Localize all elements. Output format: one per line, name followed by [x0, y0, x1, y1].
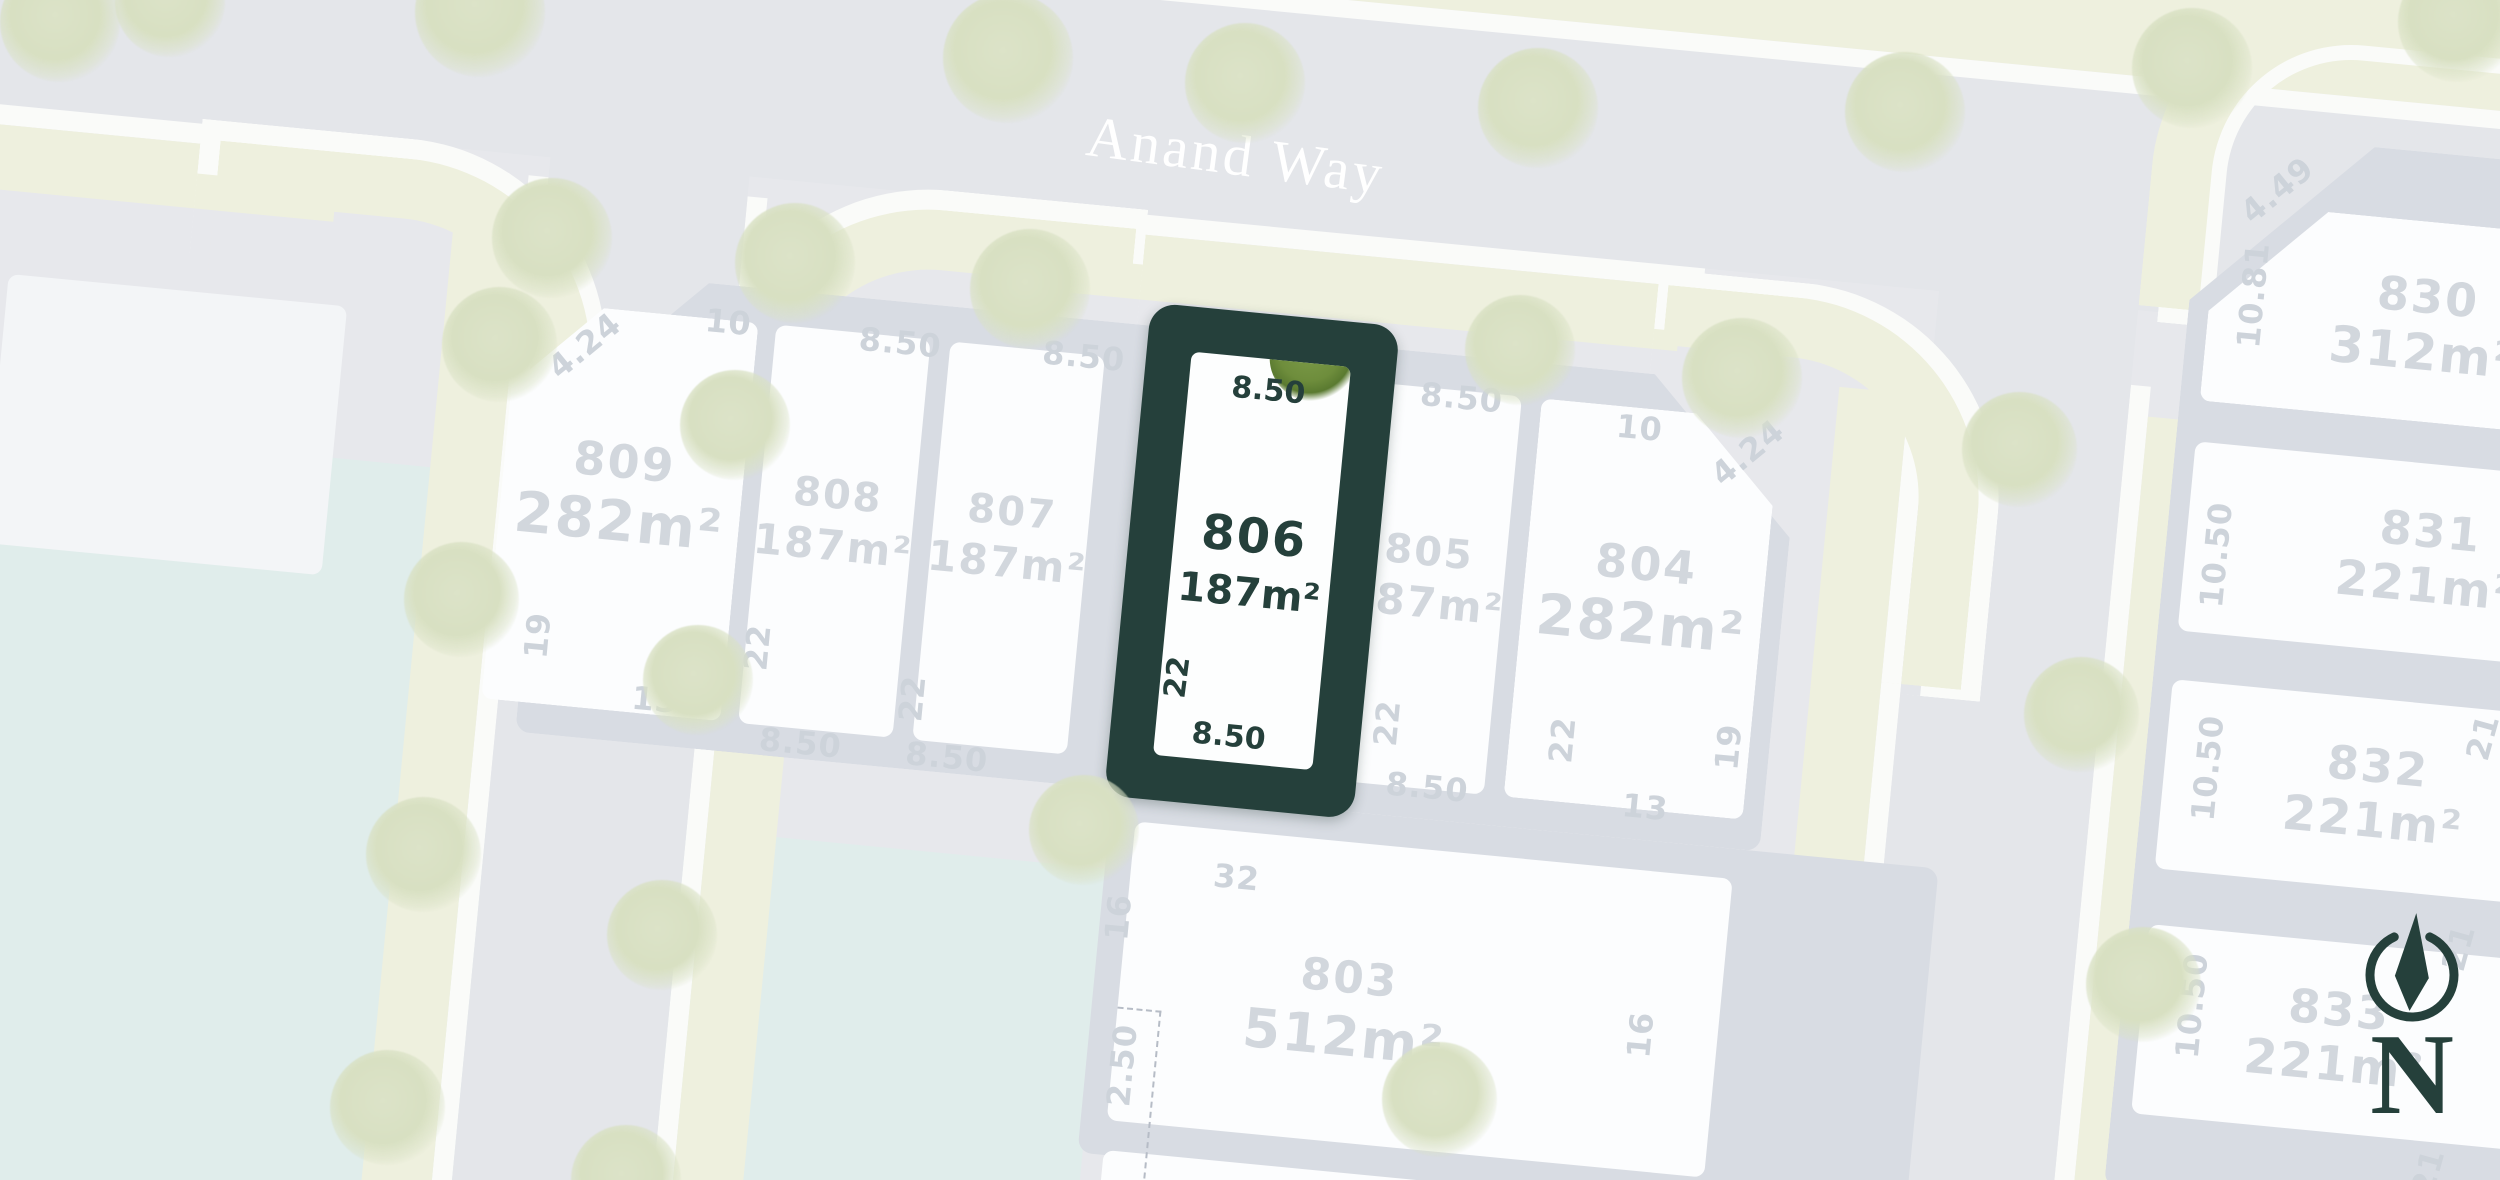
dimension-label: 8.50	[1190, 715, 1267, 757]
dimension-label: 22	[1157, 654, 1197, 700]
lot-number: 806	[1199, 504, 1310, 570]
dimension-label: 10	[703, 301, 753, 343]
compass-needle-icon	[2393, 912, 2434, 1012]
tree-icon	[1962, 392, 2077, 507]
dimension-label: 19	[516, 610, 558, 660]
tree-icon	[2132, 8, 2252, 128]
dimension-label: 8.50	[1230, 370, 1307, 412]
dimension-label: 22	[891, 673, 933, 723]
lot-area: 187m²	[751, 518, 914, 575]
tree-icon	[330, 1050, 445, 1165]
dimension-label: 8.50	[1384, 764, 1470, 810]
lot-number: 807	[966, 488, 1059, 536]
lot-number: 830	[2375, 269, 2481, 325]
north-label: N	[2370, 1011, 2454, 1115]
lot-area: 312m²	[2327, 319, 2500, 387]
lot-number: 808	[791, 471, 884, 519]
lot-806-parcel: 8.50 806 187m² 22 8.50	[1153, 352, 1351, 770]
lot-number: 803	[1299, 952, 1401, 1005]
tree-icon	[680, 370, 790, 480]
lot-area: 187m²	[926, 534, 1089, 591]
dimension-label: 8.50	[857, 320, 943, 366]
tree-icon	[366, 797, 481, 912]
dimension-label: 19	[1707, 722, 1749, 772]
dimension-label: 13	[1620, 786, 1670, 828]
lot-number: 805	[1383, 528, 1476, 576]
lot-area: 282m²	[512, 485, 726, 561]
dimension-label: 22	[1366, 698, 1408, 748]
tree-icon	[2024, 657, 2139, 772]
lot-area: 221m²	[2333, 553, 2500, 618]
tree-icon	[970, 229, 1090, 349]
tree-icon	[735, 203, 855, 323]
tree-icon	[492, 178, 612, 298]
lot-area: 221m²	[2280, 788, 2465, 853]
tree-icon	[1029, 775, 1139, 885]
tree-icon	[643, 625, 753, 735]
tree-icon	[1185, 23, 1305, 143]
tree-icon	[1845, 52, 1965, 172]
lot-number: 804	[1594, 536, 1700, 592]
unlabeled-parcel	[0, 274, 347, 575]
tree-icon	[1478, 48, 1598, 168]
lot-number: 831	[2378, 503, 2484, 559]
dimension-label: 32	[1212, 856, 1262, 898]
tree-icon	[2086, 927, 2201, 1042]
lot-number: 809	[572, 434, 678, 490]
dimension-label: 8.50	[757, 720, 843, 766]
dimension-label: 16	[1619, 1010, 1661, 1060]
lot-806-highlight[interactable]: 8.50 806 187m² 22 8.50	[1104, 303, 1400, 820]
tree-icon	[607, 880, 717, 990]
dimension-label: 22	[1541, 715, 1583, 765]
tree-icon	[404, 542, 519, 657]
tree-icon	[1682, 318, 1802, 438]
dimension-label: 2.50	[1099, 1022, 1145, 1108]
dimension-label: 8.50	[904, 734, 990, 780]
lot-area: 282m²	[1534, 587, 1748, 663]
dimension-label: 16	[1097, 892, 1139, 942]
tree-icon	[1465, 295, 1575, 405]
lot-number: 832	[2325, 738, 2431, 794]
tree-icon	[1382, 1042, 1497, 1157]
lot-area: 187m²	[1176, 564, 1322, 623]
tree-icon	[442, 287, 557, 402]
dimension-label: 10	[1615, 407, 1665, 449]
compass-icon: N	[2352, 903, 2472, 1115]
subdivision-lot-map: 809 282m² 808 187m² 807 187m² 805 187m²	[0, 0, 2500, 1180]
